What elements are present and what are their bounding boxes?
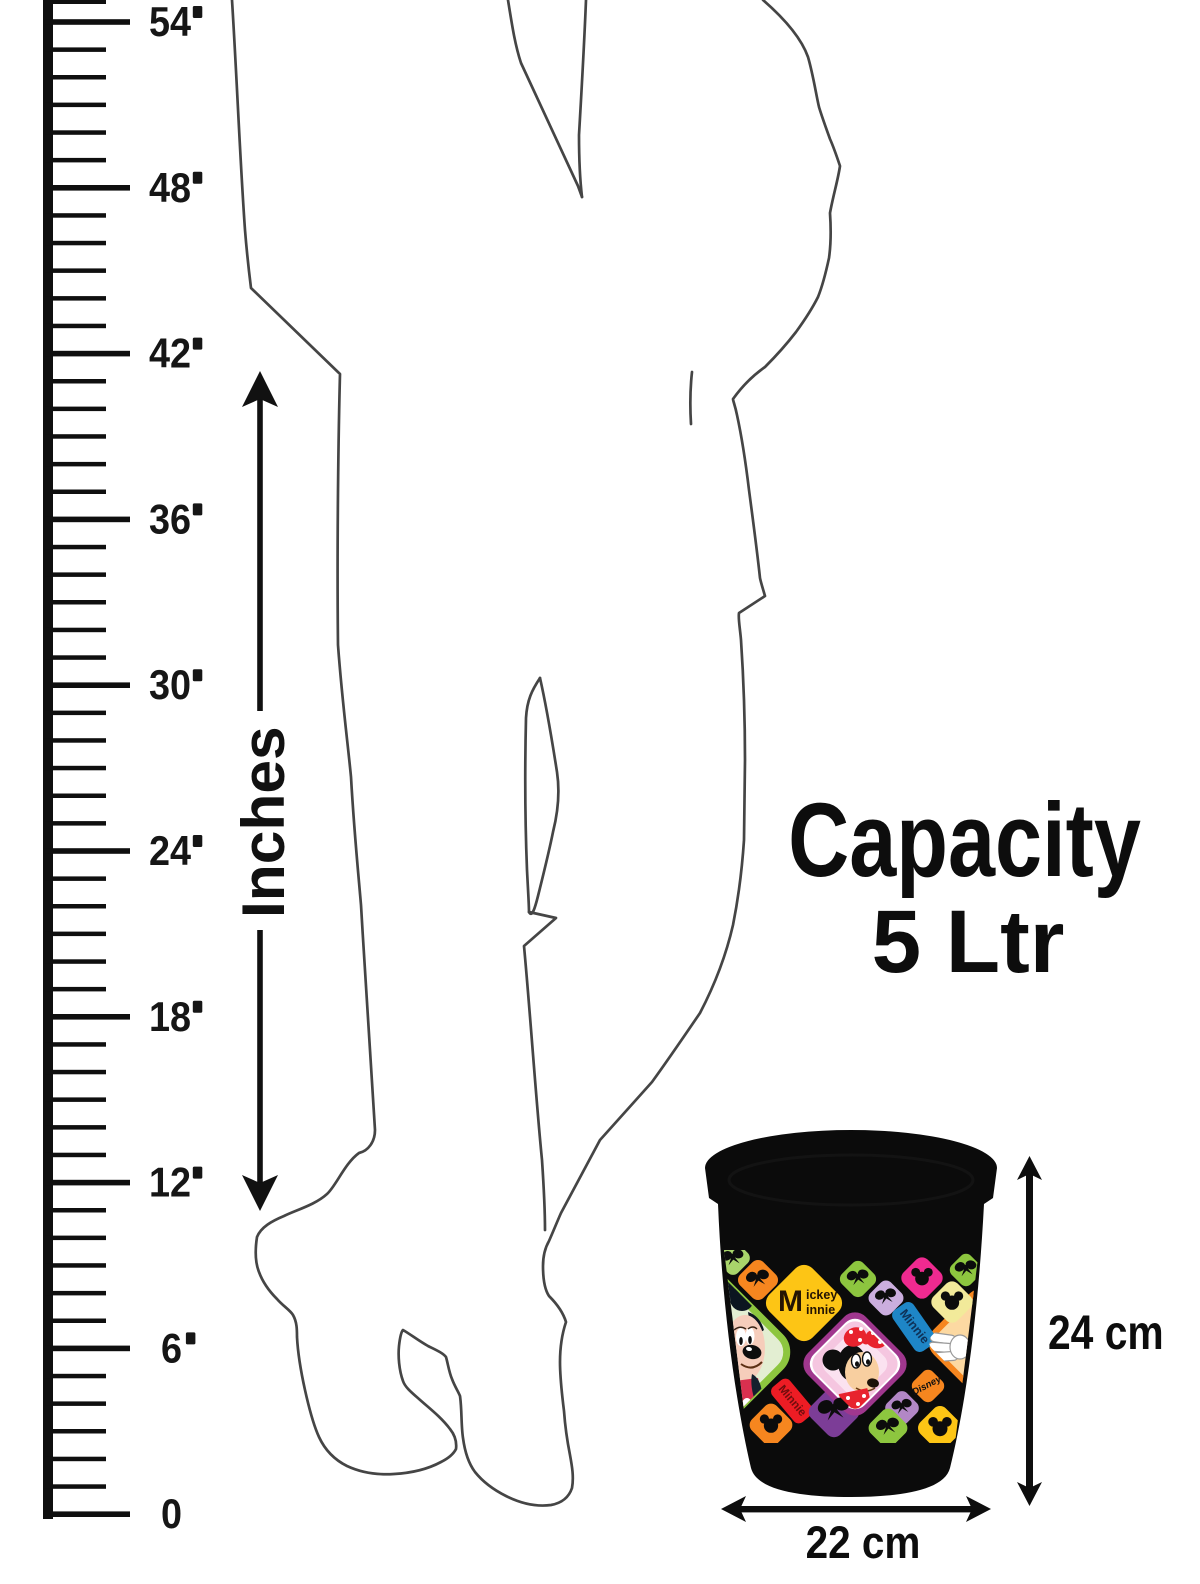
svg-text:12: 12 <box>149 1160 191 1206</box>
svg-text:24 cm: 24 cm <box>1048 1307 1164 1360</box>
svg-text:30: 30 <box>149 662 191 708</box>
svg-text:ickey: ickey <box>806 1288 837 1302</box>
svg-text:36: 36 <box>149 497 191 543</box>
svg-text:5 Ltr: 5 Ltr <box>872 891 1065 991</box>
svg-text:48: 48 <box>149 165 191 211</box>
svg-text:42: 42 <box>149 331 191 377</box>
svg-text:22 cm: 22 cm <box>806 1518 921 1568</box>
svg-text:6: 6 <box>161 1326 182 1372</box>
svg-text:M: M <box>778 1285 803 1318</box>
svg-text:54: 54 <box>149 0 191 45</box>
svg-text:24: 24 <box>149 828 191 874</box>
svg-text:Inches: Inches <box>229 726 297 918</box>
svg-text:0: 0 <box>161 1491 182 1537</box>
svg-text:Capacity: Capacity <box>788 782 1141 899</box>
svg-text:18: 18 <box>149 994 191 1040</box>
svg-text:innie: innie <box>806 1303 835 1317</box>
